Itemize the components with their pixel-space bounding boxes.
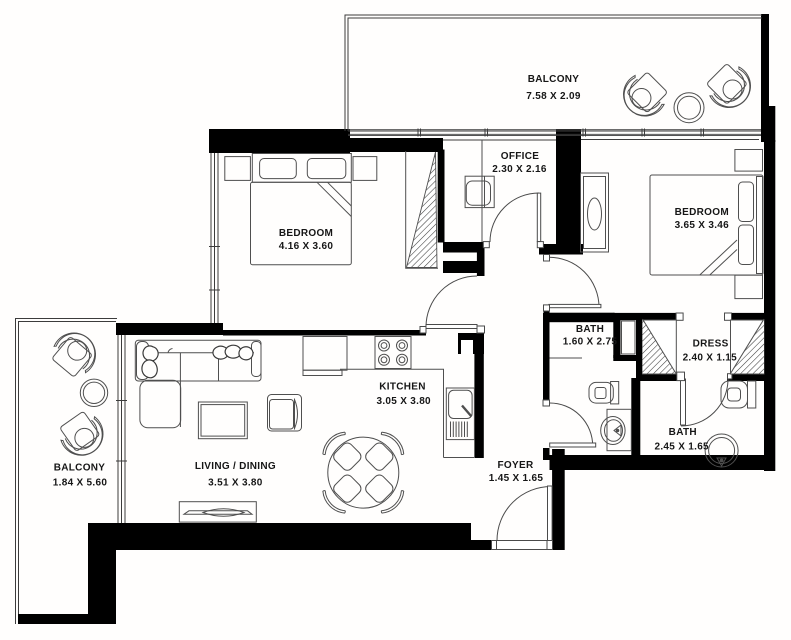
svg-text:BEDROOM: BEDROOM bbox=[675, 207, 729, 218]
svg-text:4.16 X 3.60: 4.16 X 3.60 bbox=[279, 241, 334, 252]
svg-text:1.45 X 1.65: 1.45 X 1.65 bbox=[489, 473, 544, 484]
svg-text:BALCONY: BALCONY bbox=[54, 463, 106, 474]
svg-text:KITCHEN: KITCHEN bbox=[379, 382, 426, 393]
svg-text:2.45 X 1.65: 2.45 X 1.65 bbox=[654, 441, 709, 452]
svg-text:2.30 X 2.16: 2.30 X 2.16 bbox=[492, 164, 547, 175]
svg-text:BEDROOM: BEDROOM bbox=[279, 228, 333, 239]
svg-text:7.58 X 2.09: 7.58 X 2.09 bbox=[526, 91, 581, 102]
svg-text:2.40 X 1.15: 2.40 X 1.15 bbox=[683, 353, 738, 364]
svg-text:3.51 X 3.80: 3.51 X 3.80 bbox=[208, 478, 263, 489]
svg-text:DRESS: DRESS bbox=[693, 338, 729, 349]
svg-text:3.05 X 3.80: 3.05 X 3.80 bbox=[376, 396, 431, 407]
svg-text:BATH: BATH bbox=[576, 324, 604, 335]
svg-text:OFFICE: OFFICE bbox=[501, 151, 539, 162]
svg-text:FOYER: FOYER bbox=[498, 460, 534, 471]
svg-text:1.84 X 5.60: 1.84 X 5.60 bbox=[53, 478, 108, 489]
svg-text:BATH: BATH bbox=[669, 427, 697, 438]
svg-text:BALCONY: BALCONY bbox=[528, 74, 580, 85]
svg-text:3.65 X 3.46: 3.65 X 3.46 bbox=[675, 220, 730, 231]
svg-text:1.60 X 2.75: 1.60 X 2.75 bbox=[563, 337, 618, 348]
svg-text:LIVING / DINING: LIVING / DINING bbox=[195, 461, 276, 472]
